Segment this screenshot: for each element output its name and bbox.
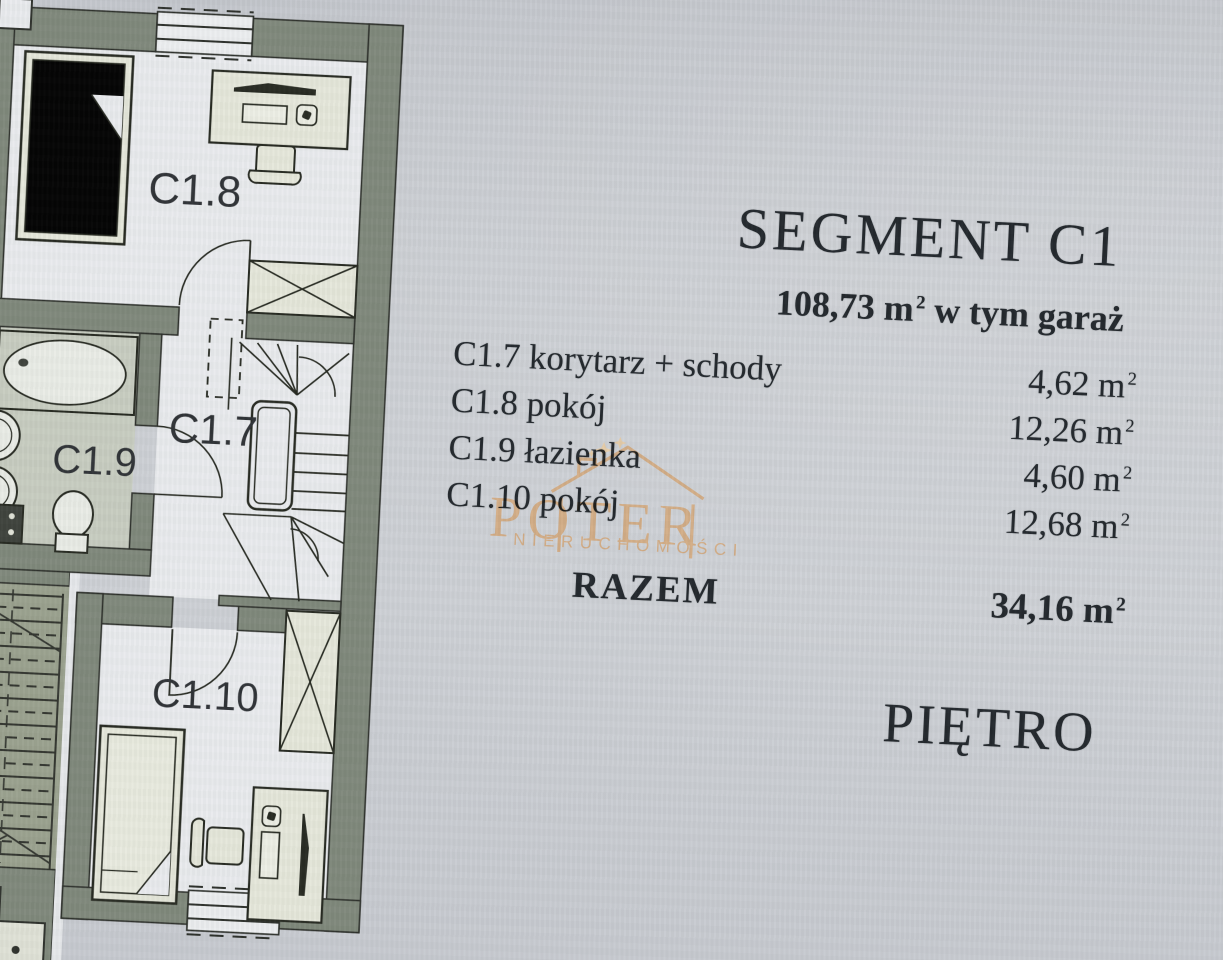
unit-sup: 2	[1123, 463, 1133, 483]
room-area: 12,26 m2	[1008, 408, 1136, 454]
chair-c110	[206, 827, 244, 865]
unit-m: m	[1093, 459, 1122, 499]
unit-m: m	[1090, 506, 1119, 546]
room-area: 4,62 m2	[1027, 362, 1137, 407]
unit-sup: 2	[1120, 510, 1130, 530]
total-area-value: 108,73	[775, 282, 876, 327]
room-id: C1.8	[450, 381, 519, 423]
unit-sup: 2	[1116, 594, 1127, 615]
page-title: SEGMENT C1	[678, 192, 1181, 283]
summary-area: 34,16 m2	[990, 584, 1127, 634]
summary-area-value: 34,16	[990, 585, 1075, 630]
floor-plan-drawing: C1.8 C1.9 C1.7 C1.10	[0, 0, 416, 960]
room-label: C1.7 korytarz + schody	[452, 334, 782, 390]
unit-sup: 2	[1127, 369, 1137, 389]
plan-label-c18: C1.8	[147, 164, 242, 217]
floor-label: PIĘTRO	[738, 684, 1223, 772]
room-name: korytarz + schody	[528, 337, 783, 388]
unit-m: m	[1097, 365, 1126, 405]
unit-m: m	[1095, 412, 1124, 452]
total-area-line: 108,73 m2 w tym garaż	[699, 278, 1200, 344]
summary-row: RAZEM 34,16 m2	[441, 557, 1126, 633]
room-area-value: 12,26	[1008, 408, 1089, 451]
unit-sup: 2	[1125, 416, 1135, 436]
room-id: C1.7	[452, 334, 521, 376]
unit-m: m	[1082, 590, 1115, 632]
washing-machine	[0, 504, 23, 544]
photographed-floor-plan-sheet: C1.8 C1.9 C1.7 C1.10 SEGMENT C1 108,73 m…	[0, 0, 1223, 960]
room-area-value: 4,60	[1023, 456, 1086, 498]
toilet-tank	[55, 533, 88, 553]
tilted-page: C1.8 C1.9 C1.7 C1.10 SEGMENT C1 108,73 m…	[0, 0, 1223, 960]
room-area: 12,68 m2	[1003, 502, 1131, 548]
room-area-value: 4,62	[1027, 362, 1090, 404]
desk-c110	[247, 787, 327, 922]
keyboard-c110	[259, 832, 279, 879]
upper-unit-fragment	[0, 0, 32, 30]
unit-sup: 2	[916, 292, 926, 313]
sparkle-icon	[587, 435, 627, 459]
room-name: pokój	[526, 384, 608, 427]
room-label: C1.8 pokój	[450, 381, 607, 429]
plan-label-c19: C1.9	[51, 437, 138, 485]
room-area: 4,60 m2	[1023, 456, 1133, 501]
unit-m: m	[883, 288, 915, 329]
room-id: C1.9	[448, 427, 517, 469]
bath-corridor-wall-upper	[135, 333, 161, 426]
plan-label-c110: C1.10	[151, 671, 260, 720]
window-top	[155, 8, 253, 61]
total-area-note: w tym garaż	[933, 290, 1125, 339]
plan-label-c17: C1.7	[168, 404, 259, 455]
toilet-bowl	[52, 490, 94, 538]
room-area-value: 12,68	[1003, 502, 1084, 545]
summary-label: RAZEM	[441, 557, 721, 614]
bath-corridor-wall-lower	[129, 493, 154, 550]
keyboard-c18	[242, 104, 287, 124]
